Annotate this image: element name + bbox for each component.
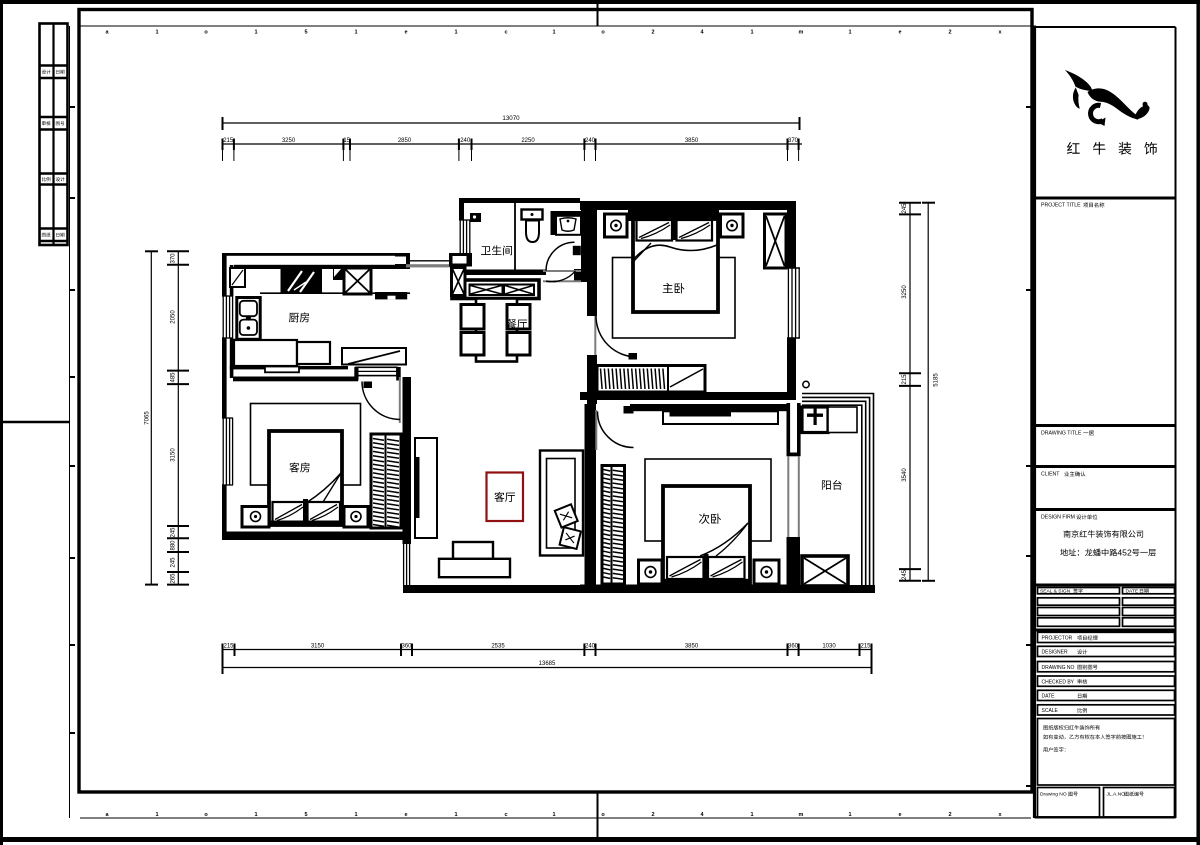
svg-text:DATE: DATE — [1042, 694, 1056, 700]
svg-text:SCALE: SCALE — [1042, 708, 1059, 714]
svg-text:13070: 13070 — [502, 115, 520, 122]
svg-text:15: 15 — [343, 138, 350, 144]
svg-text:1: 1 — [354, 812, 357, 818]
svg-text:c: c — [504, 812, 507, 818]
svg-text:240: 240 — [585, 138, 596, 144]
svg-text:3250: 3250 — [902, 285, 908, 299]
svg-text:1: 1 — [750, 812, 753, 818]
svg-text:1: 1 — [552, 812, 555, 818]
svg-text:3850: 3850 — [685, 644, 699, 650]
svg-text:PROJECT TITLE: PROJECT TITLE — [1041, 203, 1081, 209]
svg-text:m: m — [799, 30, 804, 36]
svg-text:CLIENT: CLIENT — [1041, 472, 1060, 478]
svg-text:360: 360 — [401, 644, 412, 650]
svg-text:1: 1 — [848, 812, 851, 818]
svg-text:JL.A.NO: JL.A.NO — [1107, 792, 1126, 798]
svg-text:1: 1 — [750, 30, 753, 36]
svg-text:PROJECTOR: PROJECTOR — [1042, 636, 1073, 642]
svg-text:2: 2 — [651, 812, 654, 818]
svg-text:CHECKED BY: CHECKED BY — [1042, 679, 1075, 685]
svg-text:240: 240 — [585, 644, 596, 650]
svg-text:245: 245 — [902, 203, 908, 214]
svg-text:1: 1 — [848, 30, 851, 36]
svg-text:485: 485 — [171, 372, 177, 383]
svg-text:3150: 3150 — [171, 448, 177, 462]
svg-text:3540: 3540 — [902, 468, 908, 482]
svg-text:215: 215 — [902, 374, 908, 385]
svg-text:215: 215 — [860, 644, 871, 650]
svg-text:1030: 1030 — [822, 644, 836, 650]
svg-text:SEAL & SIGN: SEAL & SIGN — [1040, 589, 1071, 595]
svg-text:245: 245 — [171, 527, 177, 538]
svg-text:3250: 3250 — [282, 138, 296, 144]
svg-text:DRAWING TITLE: DRAWING TITLE — [1041, 431, 1082, 437]
svg-text:1: 1 — [354, 30, 357, 36]
svg-text:e: e — [404, 30, 407, 36]
svg-text:m: m — [799, 812, 804, 818]
svg-text:1: 1 — [254, 812, 257, 818]
svg-text:DRAWING NO: DRAWING NO — [1042, 665, 1075, 671]
svg-text:e: e — [898, 30, 901, 36]
svg-text:2050: 2050 — [171, 310, 177, 324]
svg-text:245: 245 — [902, 569, 908, 580]
svg-text:DESIGN FIRM: DESIGN FIRM — [1041, 515, 1075, 521]
svg-text:1: 1 — [454, 30, 457, 36]
svg-text:1: 1 — [454, 812, 457, 818]
svg-text:DESIGNER: DESIGNER — [1042, 650, 1069, 656]
svg-text:2: 2 — [948, 30, 951, 36]
svg-text:1: 1 — [155, 812, 158, 818]
svg-text:3150: 3150 — [311, 644, 325, 650]
svg-text:370: 370 — [171, 253, 177, 264]
svg-text:5: 5 — [304, 812, 307, 818]
svg-text:2250: 2250 — [521, 138, 535, 144]
svg-text:e: e — [404, 812, 407, 818]
svg-text:240: 240 — [460, 138, 471, 144]
svg-text:1: 1 — [552, 30, 555, 36]
svg-text:7065: 7065 — [145, 411, 151, 425]
svg-text:265: 265 — [171, 573, 177, 584]
svg-text:Drawing NO: Drawing NO — [1040, 792, 1067, 798]
svg-text:880: 880 — [171, 540, 177, 551]
svg-text:1: 1 — [254, 30, 257, 36]
svg-text:452: 452 — [1117, 548, 1132, 558]
svg-text:2: 2 — [948, 812, 951, 818]
svg-text:5185: 5185 — [934, 373, 940, 387]
svg-text:3850: 3850 — [685, 138, 699, 144]
svg-text:c: c — [504, 30, 507, 36]
svg-text:13685: 13685 — [539, 661, 556, 667]
svg-text:e: e — [898, 812, 901, 818]
svg-text:215: 215 — [223, 644, 234, 650]
svg-text:5: 5 — [304, 30, 307, 36]
svg-text:215: 215 — [223, 138, 234, 144]
svg-text:2850: 2850 — [398, 138, 412, 144]
svg-text:360: 360 — [788, 644, 799, 650]
svg-text:370: 370 — [788, 138, 799, 144]
svg-text:2: 2 — [651, 30, 654, 36]
svg-text:2535: 2535 — [491, 644, 505, 650]
svg-text:1: 1 — [155, 30, 158, 36]
svg-text:DATE: DATE — [1126, 589, 1139, 595]
svg-text:245: 245 — [171, 557, 177, 568]
